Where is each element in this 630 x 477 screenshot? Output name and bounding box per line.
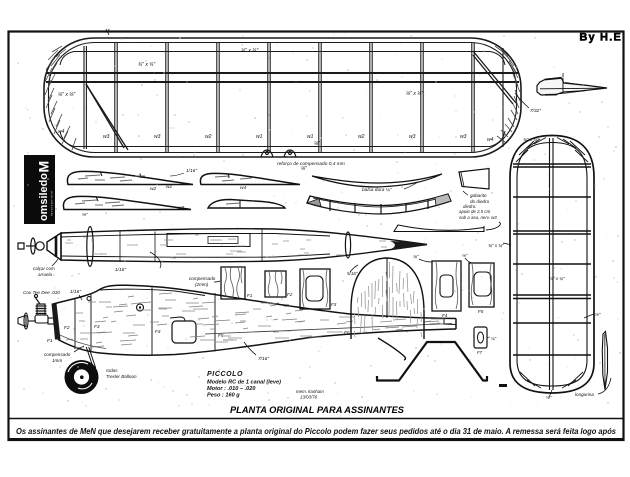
svg-text:w2: w2 [205,134,212,140]
svg-text:1/16": 1/16" [115,267,126,273]
svg-text:Motor : .010 – .020: Motor : .010 – .020 [207,386,256,392]
svg-text:13/03/76: 13/03/76 [300,395,318,400]
svg-text:F3: F3 [331,302,337,307]
svg-text:PLANTA ORIGINAL PARA ASSINANTE: PLANTA ORIGINAL PARA ASSINANTES [230,405,404,415]
svg-text:F2: F2 [64,325,70,331]
svg-text:¾" x ¾": ¾" x ¾" [488,243,504,248]
svg-text:w4: w4 [487,137,494,143]
svg-text:w2: w2 [150,186,156,192]
svg-text:F6: F6 [344,330,350,336]
svg-text:Peso : 160 g: Peso : 160 g [207,393,240,399]
svg-text:F7: F7 [477,350,483,355]
svg-text:⅛": ⅛" [283,303,289,309]
svg-text:¾" x ¾": ¾" x ¾" [138,62,155,68]
svg-text:(2mm): (2mm) [195,282,209,287]
svg-text:gabarito: gabarito [470,193,487,198]
svg-text:M: M [36,161,52,173]
svg-text:balsa dura ¼": balsa dura ¼" [362,187,392,193]
svg-text:1mm: 1mm [52,358,62,363]
svg-text:1/16": 1/16" [186,168,197,174]
svg-text:PICCOLO: PICCOLO [207,371,243,378]
svg-text:F4: F4 [442,313,448,318]
svg-text:sob a asa, nerv. w3: sob a asa, nerv. w3 [459,215,497,220]
svg-text:5/16": 5/16" [347,271,358,276]
svg-text:⅛": ⅛" [546,395,552,400]
svg-text:w1: w1 [256,134,263,140]
svg-text:w2: w2 [358,134,365,140]
svg-text:mem. kanham: mem. kanham [296,389,324,394]
svg-text:omsiledo: omsiledo [38,173,50,221]
svg-text:⅛": ⅛" [82,212,88,218]
svg-text:F5: F5 [218,333,224,339]
svg-text:l a n o i c a n r e t n i: l a n o i c a n r e t n i [50,190,54,216]
svg-text:w3: w3 [460,134,467,140]
svg-text:Cox Tee Dee .010: Cox Tee Dee .010 [23,290,60,295]
svg-text:7/16": 7/16" [258,356,269,362]
svg-text:apoie de 2,5 cm: apoie de 2,5 cm [459,209,491,214]
svg-text:longarina: longarina [575,392,594,397]
svg-text:rodas: rodas [106,368,118,373]
svg-text:w3: w3 [178,205,184,211]
svg-text:F1: F1 [247,293,253,298]
svg-text:⅛": ⅛" [314,141,320,147]
svg-text:⅛": ⅛" [462,253,468,258]
svg-text:w4: w4 [240,185,246,191]
svg-text:arruela: arruela [38,272,53,277]
svg-text:By H.E: By H.E [579,32,622,44]
svg-text:⅛": ⅛" [595,312,601,317]
svg-text:compensado: compensado [44,352,71,357]
svg-text:F3: F3 [94,324,100,330]
svg-text:w1: w1 [307,134,314,140]
svg-text:⅛" x ⅛": ⅛" x ⅛" [406,91,423,97]
svg-text:Os assinantes de MeN que dese: Os assinantes de MeN que desejarem receb… [16,426,616,436]
svg-text:1/16": 1/16" [70,289,81,295]
svg-text:F1: F1 [47,338,53,344]
svg-text:¾" x ¾": ¾" x ¾" [523,137,539,142]
svg-text:½" x ¼": ½" x ¼" [549,275,565,281]
svg-text:F5: F5 [478,309,484,314]
svg-text:F4: F4 [155,329,161,335]
svg-text:¼": ¼" [491,336,497,341]
svg-text:Trexler Balloon: Trexler Balloon [106,374,137,379]
svg-text:calçar com: calçar com [33,266,55,271]
svg-text:compensado: compensado [189,276,216,281]
svg-text:reforço de compensado 0,4 mm: reforço de compensado 0,4 mm [277,161,345,167]
svg-text:⅛" x ⅛": ⅛" x ⅛" [58,92,75,98]
svg-text:w4: w4 [58,129,65,135]
svg-text:w3: w3 [103,134,110,140]
svg-text:7/32": 7/32" [530,108,541,114]
svg-text:¼" x ¼": ¼" x ¼" [241,48,258,54]
svg-text:F2: F2 [287,292,293,297]
svg-text:w1: w1 [166,184,172,190]
svg-text:¾": ¾" [413,254,419,259]
svg-text:Modelo RC de 1 canal (leve): Modelo RC de 1 canal (leve) [207,380,281,386]
svg-text:w3: w3 [154,134,161,140]
